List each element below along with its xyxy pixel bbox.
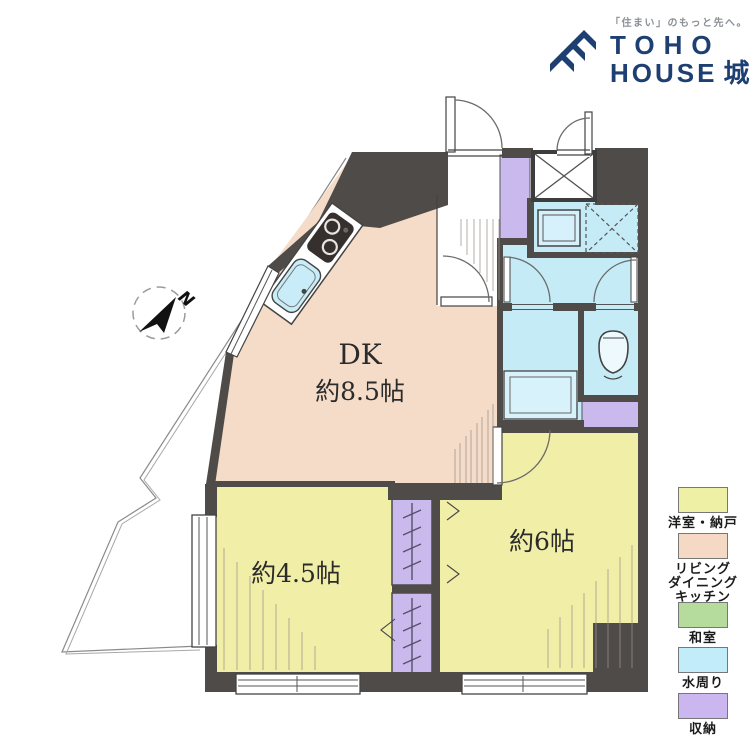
toilet-door-leaf — [631, 257, 637, 302]
legend-item-storage: 収納 — [658, 693, 748, 736]
room6-size-label: 約6帖 — [509, 527, 575, 556]
washroom-door-leaf — [504, 257, 510, 302]
window-left — [192, 515, 216, 647]
brand-tagline: 「住まい」のもっと先へ。 — [610, 14, 750, 29]
dk-size-label: 約8.5帖 — [315, 377, 405, 406]
brand-name-bottom: HOUSE城東 — [610, 60, 750, 86]
vanity-icon — [504, 371, 577, 419]
legend-label-ldk: リビング ダイニング キッチン — [658, 562, 748, 604]
legend-label-storage: 収納 — [658, 722, 748, 736]
closet-toilet — [582, 400, 640, 429]
legend-label-water: 水周り — [658, 676, 748, 690]
window-bottom-left — [236, 674, 360, 694]
entry-hall-area2 — [437, 200, 500, 306]
legend-swatch-water — [678, 647, 728, 673]
brand-text: 「住まい」のもっと先へ。 TOHO HOUSE城東 — [610, 14, 750, 86]
brand-logo: 「住まい」のもっと先へ。 TOHO HOUSE城東 — [548, 14, 748, 86]
brand-house: HOUSE — [610, 58, 717, 88]
hall-dk-door-leaf — [441, 297, 492, 306]
legend-swatch-storage — [678, 693, 728, 719]
floorplan-page: N DK 約8.5帖 約4.5帖 約6帖 「住まい」のもっと先へ。 TOHO H… — [0, 0, 750, 750]
legend-swatch-ldk — [678, 533, 728, 559]
entrance-door-arc — [455, 100, 502, 148]
dk-label: DK — [338, 338, 382, 371]
legend-item-water: 水周り — [658, 647, 748, 690]
closet-entry — [500, 155, 530, 240]
window-bottom-right — [462, 674, 587, 694]
brand-name-top: TOHO — [610, 32, 750, 58]
legend-item-western: 洋室・納戸 — [658, 487, 748, 530]
washing-machine-icon — [538, 210, 580, 246]
legend-swatch-japanese — [678, 602, 728, 628]
legend-item-japanese: 和室 — [658, 602, 748, 645]
legend-swatch-western — [678, 487, 728, 513]
room6-door-leaf — [493, 427, 502, 485]
brand-area: 城東 — [723, 58, 750, 88]
room45-size-label: 約4.5帖 — [251, 559, 341, 588]
entrance-door-leaf — [446, 97, 455, 152]
legend-item-ldk: リビング ダイニング キッチン — [658, 533, 748, 604]
meter-box-icon — [533, 152, 595, 200]
floorplan-canvas: N DK 約8.5帖 約4.5帖 約6帖 — [0, 0, 750, 750]
legend-label-japanese: 和室 — [658, 631, 748, 645]
hall-area — [500, 240, 645, 310]
legend-label-western: 洋室・納戸 — [658, 516, 748, 530]
compass-icon: N — [133, 287, 198, 339]
compass-n-label: N — [174, 287, 198, 311]
toho-house-logo-icon — [548, 26, 602, 78]
